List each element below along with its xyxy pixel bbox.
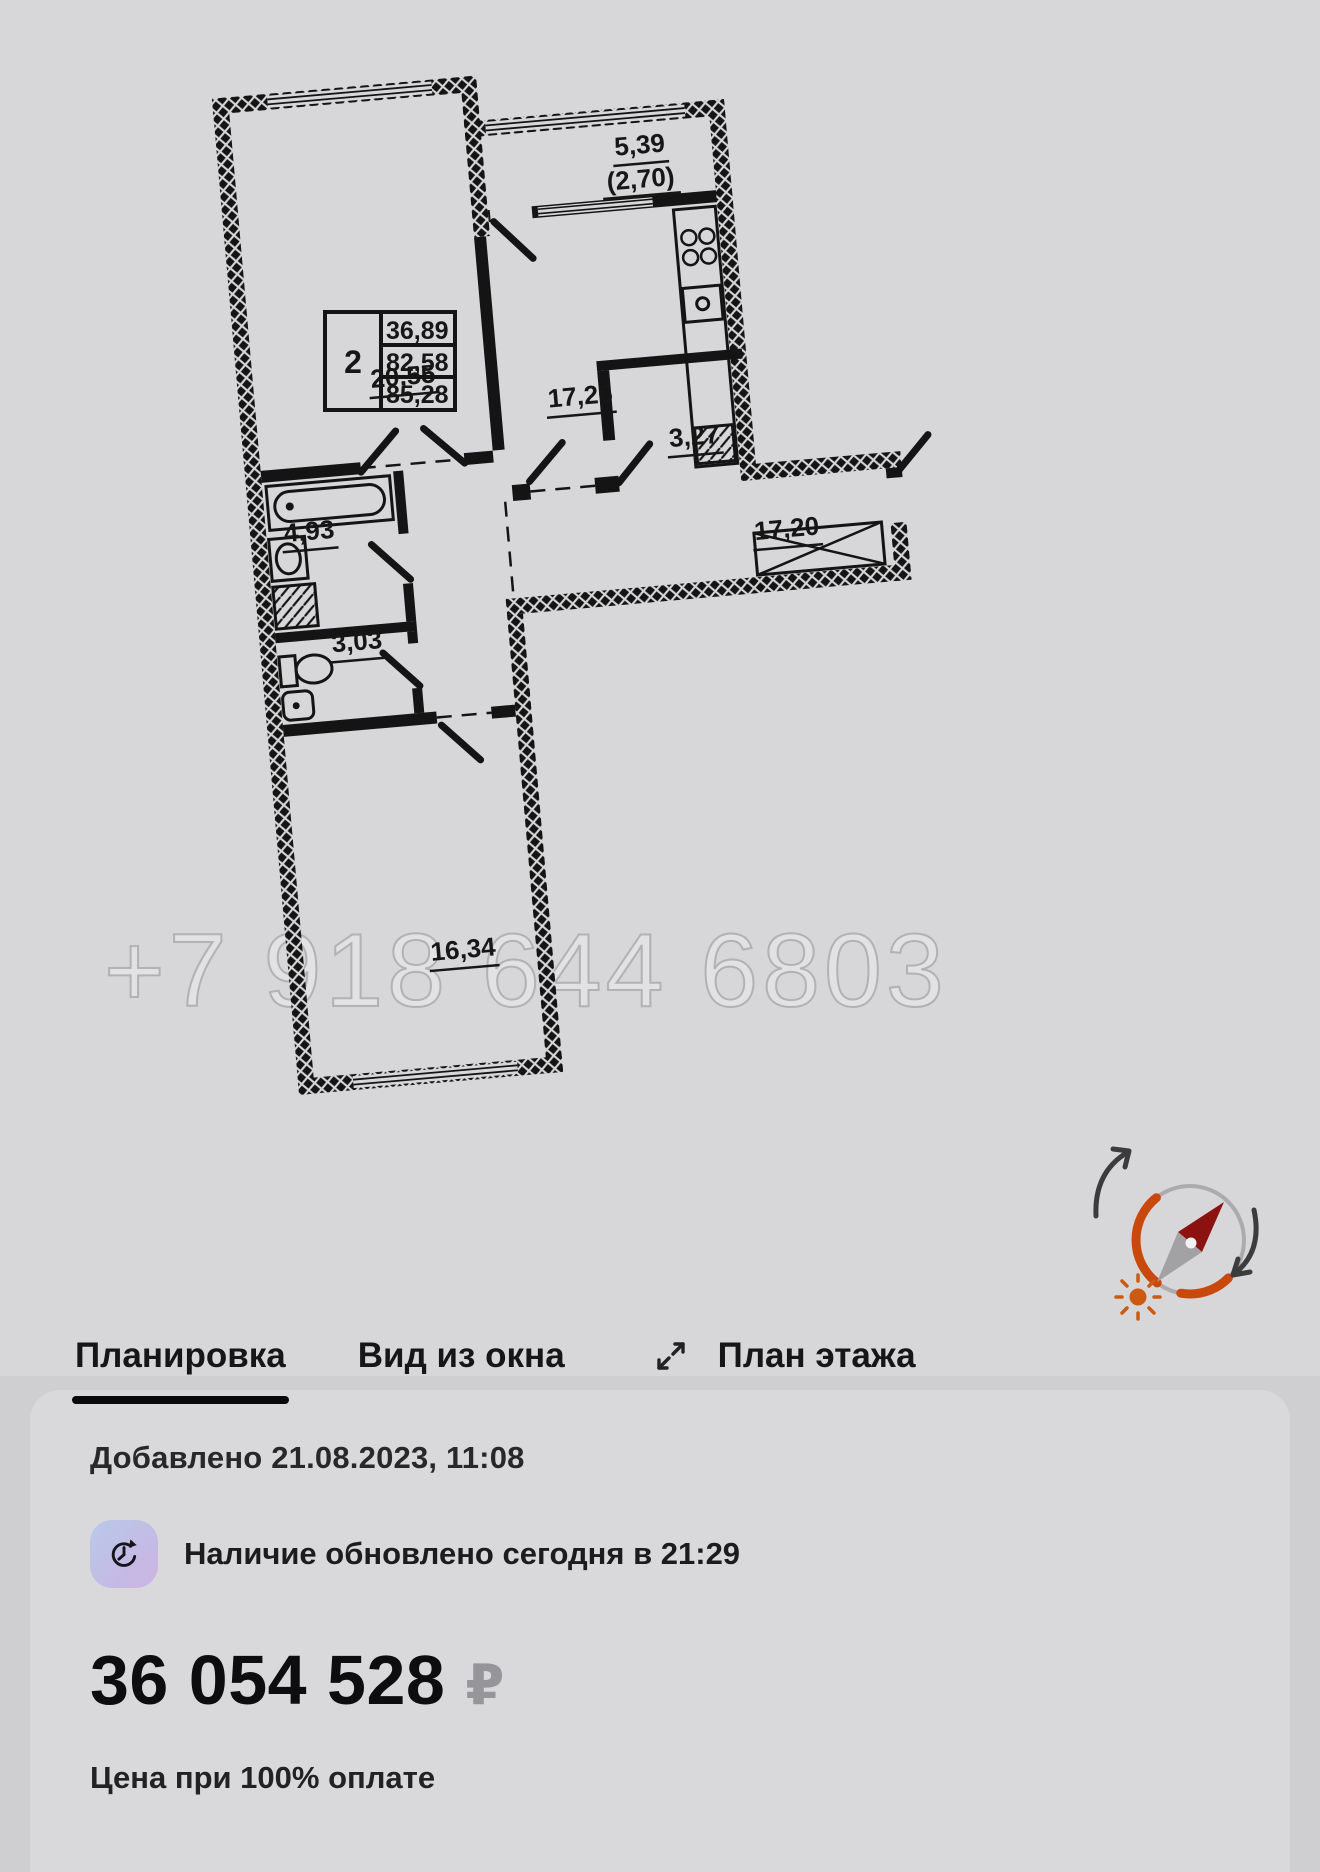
washing-machine	[273, 584, 319, 630]
sun-icon	[1116, 1275, 1160, 1319]
info-area-1: 36,89	[386, 317, 449, 345]
expand-icon[interactable]	[651, 1336, 691, 1376]
offer-card: Добавлено 21.08.2023, 11:08 Наличие обно…	[30, 1390, 1290, 1872]
room-label-bedroom: 16,34	[429, 931, 497, 967]
room-label-wc: 3,03	[330, 624, 383, 658]
price-note: Цена при 100% оплате	[90, 1760, 1230, 1796]
doors	[340, 186, 952, 768]
app-screen: +7 918 644 6803	[0, 0, 1320, 1872]
room-label-bathroom: 4,93	[282, 514, 335, 548]
availability-text: Наличие обновлено сегодня в 21:29	[184, 1536, 740, 1572]
plan-info-box: 2 36,89 82,58 85,28	[325, 312, 455, 410]
tab-window-view[interactable]: Вид из окна	[358, 1336, 565, 1376]
info-area-3: 85,28	[386, 381, 449, 409]
added-date: Добавлено 21.08.2023, 11:08	[90, 1440, 1230, 1476]
info-area-2: 82,58	[386, 349, 449, 377]
tab-group-floor: План этажа	[651, 1336, 916, 1376]
plan-tabs: Планировка Вид из окна План этажа	[0, 1336, 1320, 1376]
watermark-phone: +7 918 644 6803	[104, 913, 948, 1029]
floorplan-viewer[interactable]: +7 918 644 6803	[0, 0, 1320, 1336]
price-value: 36 054 528	[90, 1640, 445, 1720]
toilet	[279, 656, 298, 687]
room-labels: 20,55 17,26 3,27 17,20 4,93 3,03 16,34 5…	[249, 117, 857, 981]
room-label-hall: 3,27	[668, 419, 721, 453]
tab-layout[interactable]: Планировка	[75, 1336, 286, 1376]
room-label-corridor: 17,20	[753, 511, 820, 547]
price-row: 36 054 528 ₽	[90, 1640, 1230, 1720]
bottom-sheet: Добавлено 21.08.2023, 11:08 Наличие обно…	[0, 1376, 1320, 1872]
room-label-balcony: 5,39	[613, 127, 666, 161]
floorplan-svg: +7 918 644 6803	[0, 0, 1320, 1336]
info-rooms-count: 2	[344, 344, 362, 380]
room-label-balcony-reduced: (2,70)	[605, 161, 675, 197]
compass-needle	[1157, 1202, 1224, 1282]
availability-updated-icon	[90, 1520, 158, 1588]
kitchen-sink	[682, 285, 723, 322]
room-label-kitchen: 17,26	[547, 378, 614, 414]
stove	[681, 228, 717, 266]
ruble-sign: ₽	[465, 1653, 504, 1718]
availability-row: Наличие обновлено сегодня в 21:29	[90, 1520, 1230, 1588]
tab-floor-plan[interactable]: План этажа	[718, 1336, 916, 1376]
compass[interactable]	[1096, 1149, 1256, 1319]
